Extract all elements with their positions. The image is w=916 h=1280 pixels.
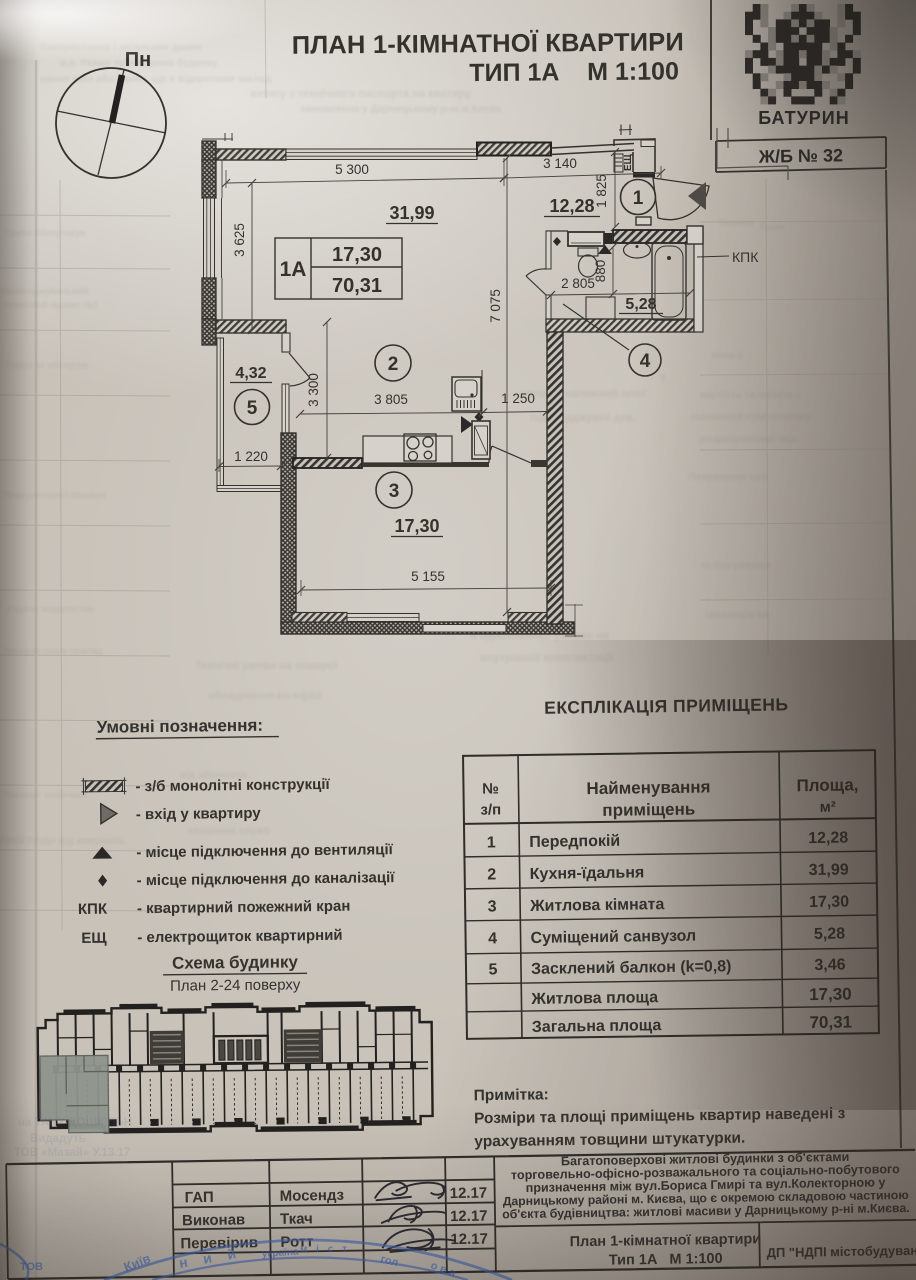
svg-text:4,32: 4,32 xyxy=(235,365,266,382)
svg-text:м²: м² xyxy=(820,799,836,816)
svg-text:гол: гол xyxy=(379,1253,399,1269)
svg-text:17,30: 17,30 xyxy=(809,893,849,911)
svg-text:17,30: 17,30 xyxy=(809,984,852,1004)
svg-text:70,31: 70,31 xyxy=(332,275,382,297)
svg-text:Суміщений санвузол: Суміщений санвузол xyxy=(530,928,696,947)
svg-text:ЕКСПЛІКАЦІЯ ПРИМІЩЕНЬ: ЕКСПЛІКАЦІЯ ПРИМІЩЕНЬ xyxy=(544,694,789,717)
svg-text:План 1-кімнатної квартири: План 1-кімнатної квартири xyxy=(570,1231,762,1250)
svg-text:17,30: 17,30 xyxy=(332,244,382,266)
svg-text:Київ: Київ xyxy=(122,1251,153,1275)
svg-text:Житлова кімната: Житлова кімната xyxy=(529,896,665,915)
svg-text:3 300: 3 300 xyxy=(306,373,321,407)
svg-text:на ТАНУ-ДОШКІЛЬН: на ТАНУ-ДОШКІЛЬН xyxy=(18,1117,132,1129)
svg-text:№: № xyxy=(482,780,499,797)
svg-text:Найменування: Найменування xyxy=(586,777,710,798)
svg-text:31,99: 31,99 xyxy=(389,203,434,223)
svg-text:Ж/Б № 32: Ж/Б № 32 xyxy=(758,145,844,166)
svg-text:Примітка:: Примітка: xyxy=(474,1086,549,1104)
svg-text:3,46: 3,46 xyxy=(814,957,845,974)
svg-text:Загальна площа: Загальна площа xyxy=(532,1017,662,1036)
svg-text:5 155: 5 155 xyxy=(411,569,445,584)
svg-text:1 220: 1 220 xyxy=(234,449,268,464)
svg-text:880: 880 xyxy=(593,260,608,283)
svg-text:Площа,: Площа, xyxy=(796,775,858,795)
svg-text:ГАП: ГАП xyxy=(185,1189,214,1206)
svg-text:12,28: 12,28 xyxy=(549,196,594,216)
svg-text:12.17: 12.17 xyxy=(450,1185,488,1203)
svg-text:призначення між вул.Бориса Гми: призначення між вул.Бориса Гмирі та вул.… xyxy=(526,1175,886,1195)
svg-text:12.17: 12.17 xyxy=(450,1231,488,1249)
svg-text:Схема будинку: Схема будинку xyxy=(172,952,299,972)
svg-text:Ткач: Ткач xyxy=(280,1210,313,1228)
svg-text:торговельно-офісно-розважально: торговельно-офісно-розважального та соці… xyxy=(511,1162,900,1182)
svg-text:12.17: 12.17 xyxy=(450,1208,488,1226)
svg-text:12,28: 12,28 xyxy=(808,830,848,848)
svg-text:м і с т: м і с т xyxy=(300,1244,350,1255)
svg-text:ТОВ: ТОВ xyxy=(20,1261,43,1273)
svg-text:5: 5 xyxy=(488,961,497,978)
svg-text:Ротт: Ротт xyxy=(280,1233,313,1251)
svg-text:Житлова площа: Житлова площа xyxy=(530,989,658,1008)
svg-text:5,28: 5,28 xyxy=(814,926,845,943)
svg-text:україна: україна xyxy=(261,1246,299,1260)
svg-text:7 075: 7 075 xyxy=(488,289,503,323)
svg-text:ПЛАН 1-КІМНАТНОЇ КВАРТИРИ: ПЛАН 1-КІМНАТНОЇ КВАРТИРИ xyxy=(292,28,684,59)
svg-text:3 805: 3 805 xyxy=(374,392,408,407)
svg-text:Мосендз: Мосендз xyxy=(280,1187,345,1205)
svg-text:БАТУРИН: БАТУРИН xyxy=(758,108,850,128)
svg-text:17,30: 17,30 xyxy=(394,516,439,536)
svg-text:Засклений балкон (k=0,8): Засклений балкон (k=0,8) xyxy=(531,958,732,978)
svg-text:5,28: 5,28 xyxy=(625,296,656,313)
svg-text:КПК: КПК xyxy=(732,249,759,265)
svg-text:ЕЩ: ЕЩ xyxy=(623,153,634,171)
svg-text:1А: 1А xyxy=(280,258,307,281)
svg-text:5: 5 xyxy=(247,398,258,419)
svg-text:1: 1 xyxy=(633,188,644,209)
svg-text:4: 4 xyxy=(488,930,497,947)
svg-text:- квартирний пожежний кран: - квартирний пожежний кран xyxy=(137,898,351,918)
svg-text:31,99: 31,99 xyxy=(809,862,849,880)
svg-text:приміщень: приміщень xyxy=(602,800,695,820)
svg-text:2: 2 xyxy=(487,866,496,883)
svg-text:Багатоповерхові житлові будинк: Багатоповерхові житлові будинки з об'єкт… xyxy=(561,1150,850,1169)
svg-text:об'єкта будівництва: житлові м: об'єкта будівництва: житлові масиви у Да… xyxy=(502,1201,910,1221)
svg-text:Дарницькому районі м. Києва, щ: Дарницькому районі м. Києва, що є окремо… xyxy=(503,1188,909,1208)
svg-text:ТИП 1А М 1:100: ТИП 1А М 1:100 xyxy=(469,57,679,87)
svg-text:- електрощиток квартирний: - електрощиток квартирний xyxy=(137,927,342,947)
svg-text:Умовні позначення:: Умовні позначення: xyxy=(97,716,263,737)
svg-text:ДП "НДПІ містобудування: ДП "НДПІ містобудування xyxy=(767,1243,916,1261)
svg-text:3: 3 xyxy=(488,898,497,915)
svg-text:з/п: з/п xyxy=(480,801,501,818)
svg-text:5 300: 5 300 xyxy=(335,162,369,177)
svg-text:3 625: 3 625 xyxy=(232,223,247,257)
svg-text:4: 4 xyxy=(640,351,651,372)
svg-text:о в а: о в а xyxy=(429,1260,458,1280)
svg-text:1: 1 xyxy=(487,834,496,851)
svg-text:- місце підключення до каналіз: - місце підключення до каналізації xyxy=(137,869,396,889)
svg-text:2 805: 2 805 xyxy=(561,276,595,291)
svg-text:70,31: 70,31 xyxy=(809,1012,852,1032)
svg-text:3: 3 xyxy=(389,481,400,502)
svg-text:Кухня-їдальня: Кухня-їдальня xyxy=(530,864,645,883)
svg-text:урахуванням товщини штукатурки: урахуванням товщини штукатурки. xyxy=(474,1130,745,1151)
svg-text:Виконав: Виконав xyxy=(182,1211,245,1229)
svg-text:Перевірив: Перевірив xyxy=(180,1234,258,1252)
svg-text:КПК: КПК xyxy=(78,901,108,918)
svg-text:- місце підключення до вентиля: - місце підключення до вентиляції xyxy=(136,841,394,861)
svg-text:- вхід у квартиру: - вхід у квартиру xyxy=(136,805,262,824)
svg-text:Тип 1А М 1:100: Тип 1А М 1:100 xyxy=(609,1251,723,1269)
svg-text:2: 2 xyxy=(388,354,399,375)
svg-text:Розміри та площі приміщень ква: Розміри та площі приміщень квартир навед… xyxy=(474,1105,846,1127)
svg-text:1 825: 1 825 xyxy=(594,174,609,208)
svg-text:План 2-24 поверху: План 2-24 поверху xyxy=(170,976,301,994)
svg-text:Видадуть: Видадуть xyxy=(30,1133,86,1145)
svg-text:ТОВ «Мазай» У.13.17: ТОВ «Мазай» У.13.17 xyxy=(14,1147,130,1159)
svg-text:ЕЩ: ЕЩ xyxy=(81,930,107,947)
svg-text:3 140: 3 140 xyxy=(543,156,577,171)
svg-text:н и й: н и й xyxy=(178,1244,243,1271)
svg-text:Передпокій: Передпокій xyxy=(529,833,620,851)
